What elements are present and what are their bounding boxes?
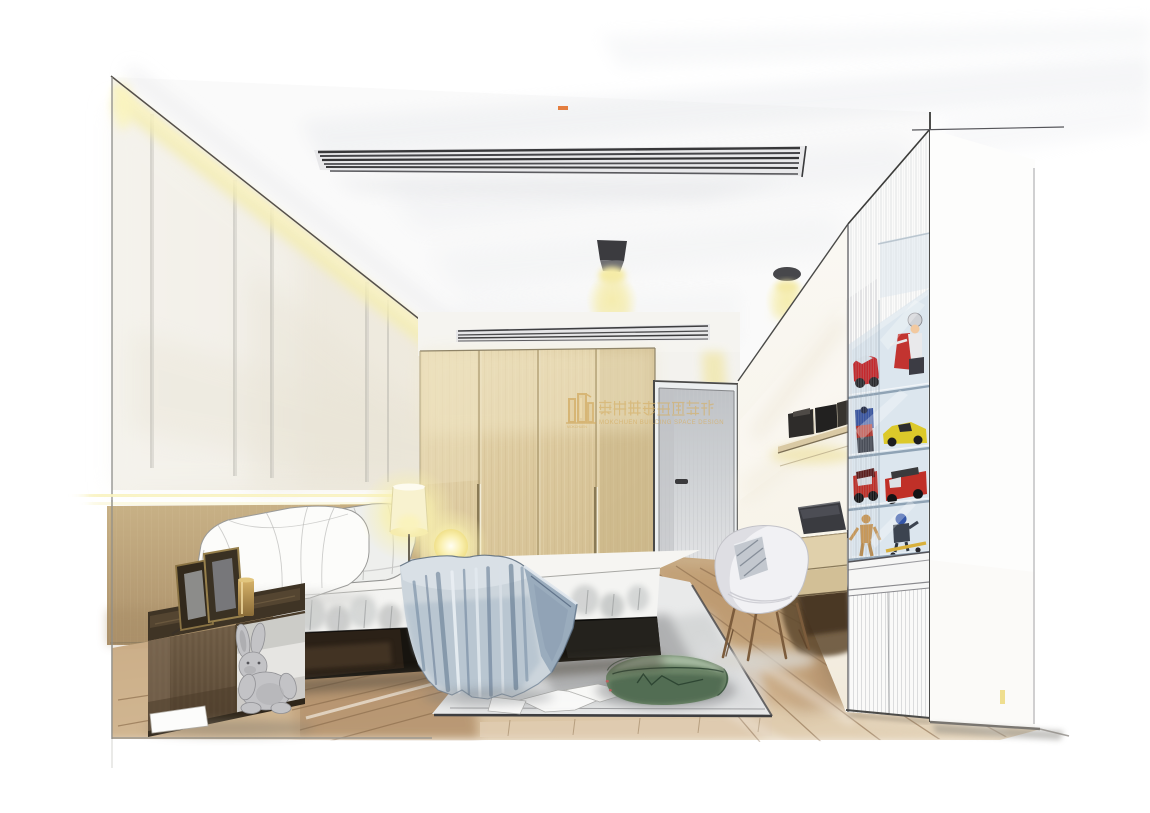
svg-text:MOKCHUEN BUILDING SPACE DESIGN: MOKCHUEN BUILDING SPACE DESIGN [599,420,724,426]
svg-text:MOKCHUEN: MOKCHUEN [567,425,587,429]
